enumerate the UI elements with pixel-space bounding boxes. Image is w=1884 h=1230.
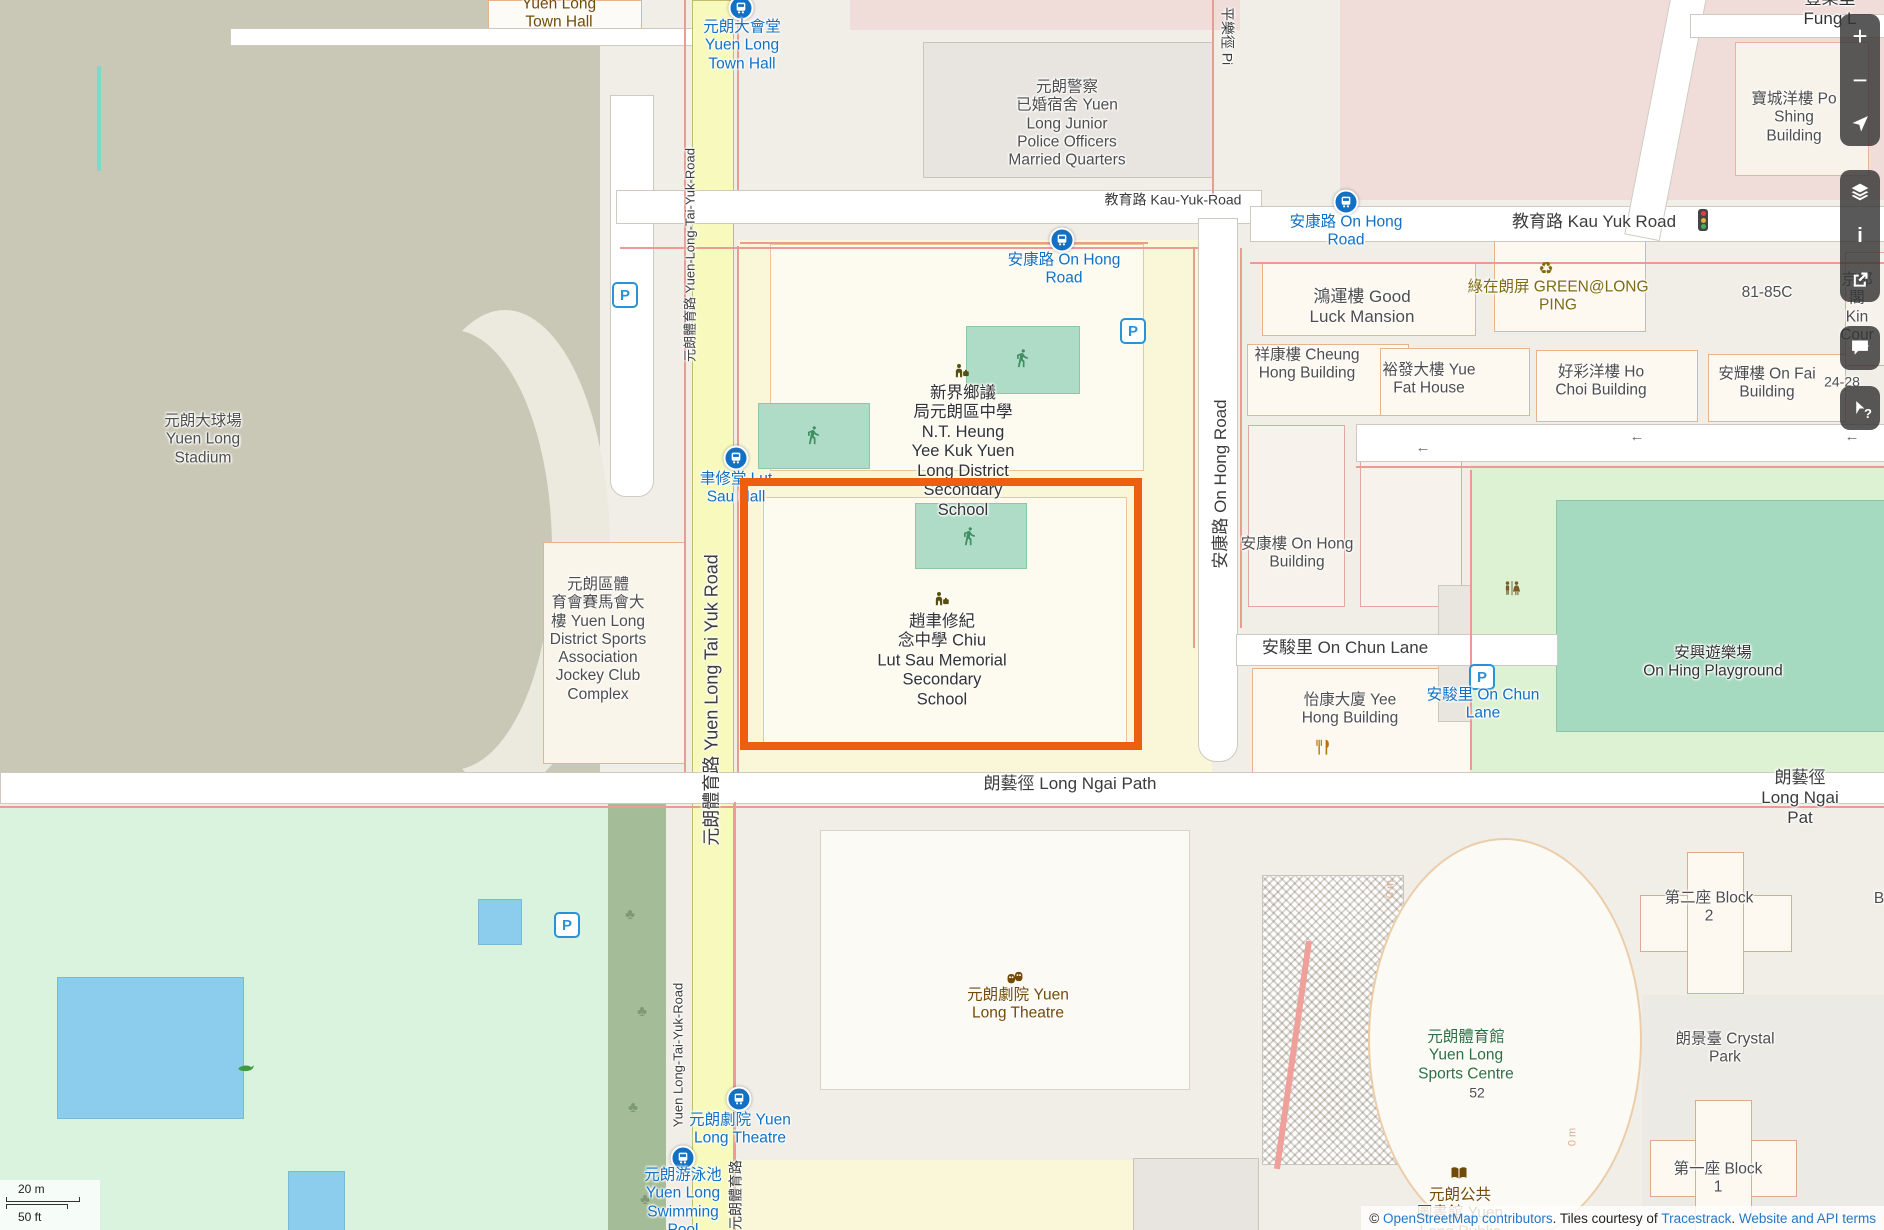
query-question-glyph: ? (1864, 406, 1872, 421)
po-shing-label: 寶城洋樓 Po Shing Building (1749, 91, 1839, 146)
fence-kau-yuk-south (620, 247, 1198, 249)
attribution-bar: © OpenStreetMap contributors. Tiles cour… (1361, 1206, 1884, 1230)
fence-on-hong-w (1193, 248, 1195, 648)
on-hong-building-shape-1 (1248, 425, 1345, 607)
parking-icon[interactable]: P (1120, 318, 1146, 344)
scale-bar-imperial-line (6, 1204, 68, 1209)
fence-on-ning (1356, 466, 1884, 468)
scale-bar: 20 m 50 ft (0, 1180, 100, 1230)
school-yellow-bottom (735, 1160, 1135, 1230)
road-label-tai-yuk-cjk-bottom: 元朗體育路 (728, 1160, 745, 1230)
query-features-button[interactable]: ? (1840, 386, 1880, 430)
layers-control-group: i (1840, 170, 1880, 302)
attribution-sep: . (1731, 1211, 1739, 1226)
note-control-group (1840, 326, 1880, 370)
teal-line (97, 66, 101, 171)
sports-assoc-label: 元朗區體 育會賽馬會大 樓 Yuen Long District Sports … (550, 576, 646, 704)
road-label-kau-yuk-west: 教育路 Kau-Yuk-Road (1105, 192, 1242, 209)
road-label-tai-yuk-bottom: Yuen Long-Tai-Yuk-Road (670, 983, 685, 1128)
block-edge-label: B (1874, 890, 1884, 908)
tracestrack-link[interactable]: Tracestrack (1661, 1211, 1731, 1226)
swimming-pool-main (57, 977, 244, 1119)
sports-centre-label: 元朗體育館 Yuen Long Sports Centre (1418, 1029, 1514, 1084)
library-book-icon (1450, 1165, 1468, 1180)
crystal-park-label: 朗景臺 Crystal Park (1675, 1031, 1774, 1068)
restaurant-icon (1314, 739, 1330, 755)
yee-hong-label: 怡康大廈 Yee Hong Building (1302, 692, 1399, 729)
on-fai-label: 安輝樓 On Fai Building (1718, 366, 1815, 403)
tree-icon: ♣ (637, 1003, 647, 1021)
bus-stop-icon[interactable] (1050, 228, 1075, 253)
police-quarters-label: 元朗警察 已婚宿舍 Yuen Long Junior Police Office… (1008, 78, 1125, 169)
theatre-masks-icon (1007, 970, 1024, 985)
traffic-light-icon (1698, 209, 1708, 231)
block1-label: 第一座 Block 1 (1674, 1161, 1763, 1198)
road-label-tai-yuk-top: 元朗體育路 Yuen-Long-Tai-Yuk-Road (682, 148, 697, 362)
oneway-arrow: ← (1416, 439, 1431, 457)
residential-pink-top (850, 0, 1240, 30)
parking-icon[interactable]: P (612, 282, 638, 308)
selected-feature-highlight (740, 478, 1142, 750)
runner-icon (1012, 348, 1032, 368)
bus-stop-icon[interactable] (729, 0, 754, 21)
stadium-label: 元朗大球場 Yuen Long Stadium (164, 413, 242, 468)
road-label-long-ngai-east: 朗藝徑 Long Ngai Pat (1758, 768, 1842, 828)
scale-metric: 20 m (4, 1182, 96, 1196)
toilets-icon (1503, 579, 1521, 597)
runner-icon (803, 425, 823, 445)
ho-choi-label: 好彩洋樓 Ho Choi Building (1555, 364, 1646, 401)
osm-contributors-link[interactable]: OpenStreetMap contributors (1383, 1211, 1553, 1226)
parking-icon[interactable]: P (554, 912, 580, 938)
theatre-building-shape (820, 830, 1190, 1090)
attribution-mid: . Tiles courtesy of (1553, 1211, 1662, 1226)
sports-centre-addr-label: 52 (1469, 1085, 1485, 1102)
oneway-arrow: ← (1845, 428, 1860, 446)
road-on-ning (1356, 424, 1884, 462)
road-label-on-chun: 安駿里 On Chun Lane (1262, 638, 1428, 658)
road-label-long-ngai-west: 朗藝徑 Long Ngai Path (984, 774, 1157, 794)
oneway-arrow: ← (1630, 428, 1645, 446)
on-chun-stop-label: 安駿里 On Chun Lane (1427, 687, 1540, 724)
on-hong-stop-west-label: 安康路 On Hong Road (1008, 252, 1121, 289)
fence-tai-yuk-west (684, 0, 686, 772)
swimming-pool-lower (288, 1171, 345, 1230)
share-button[interactable] (1840, 258, 1880, 302)
fence-school-top (740, 242, 1148, 244)
on-hong-stop-east-label: 安康路 On Hong Road (1290, 214, 1403, 251)
bus-stop-icon[interactable] (724, 446, 749, 471)
gray-building-bottom (1133, 1158, 1259, 1230)
theatre-label: 元朗劇院 Yuen Long Theatre (967, 987, 1069, 1024)
road-label-ping-lok: 平樂徑 Pi (1219, 7, 1236, 65)
road-long-ngai (0, 772, 1884, 804)
stadium-infield (352, 330, 552, 770)
map-canvas[interactable]: P P P P ♻ ♣ ♣ ♣ ♣ 教育路 Kau-Yuk-Road 教育路 K… (0, 0, 1884, 1230)
town-hall-label: Yuen Long Town Hall (522, 0, 596, 32)
crocodile-icon (238, 1062, 255, 1073)
scale-bar-metric-line (6, 1197, 80, 1202)
fence-ping-lok (1212, 0, 1214, 195)
fence-playground (1470, 470, 1472, 770)
on-hong-building-label: 安康樓 On Hong Building (1241, 536, 1354, 573)
track-distance-label: 0 m (1567, 1128, 1580, 1146)
cheung-hong-label: 祥康樓 Cheung Hong Building (1254, 347, 1359, 384)
road-label-on-hong: 安康路 On Hong Road (1211, 399, 1231, 568)
recycling-icon: ♻ (1538, 259, 1553, 279)
attribution-prefix: © (1369, 1211, 1383, 1226)
road-label-tai-yuk-main: 元朗體育路 Yuen Long Tai Yuk Road (701, 554, 722, 846)
query-control-group: ? (1840, 386, 1880, 430)
zoom-in-button[interactable]: + (1840, 14, 1880, 58)
yue-fat-label: 裕發大樓 Yue Fat House (1382, 362, 1475, 399)
green-long-ping-label: 綠在朗屏 GREEN@LONG PING (1467, 279, 1648, 316)
terms-link[interactable]: Website and API terms (1739, 1211, 1876, 1226)
geolocate-button[interactable] (1840, 102, 1880, 146)
good-luck-mansion-label: 鴻運樓 Good Luck Mansion (1310, 287, 1415, 327)
swimming-pool-stop-label: 元朗游泳池 Yuen Long Swimming Pool (644, 1166, 722, 1230)
theatre-stop-label: 元朗劇院 Yuen Long Theatre (689, 1112, 791, 1149)
fence-tai-yuk-east2 (737, 246, 739, 772)
add-note-button[interactable] (1840, 326, 1880, 370)
fence-long-ngai (0, 806, 1884, 808)
zoom-out-button[interactable]: − (1840, 58, 1880, 102)
bus-stop-icon[interactable] (1334, 190, 1359, 215)
scale-imperial: 50 ft (4, 1210, 96, 1224)
fence-kau-yuk-south-east (1250, 262, 1884, 264)
on-hing-pitch (1556, 500, 1884, 732)
tree-icon: ♣ (628, 1099, 638, 1117)
school-icon (953, 362, 971, 380)
bus-stop-icon[interactable] (727, 1087, 752, 1112)
on-hing-playground-label: 安興遊樂場 On Hing Playground (1643, 645, 1783, 682)
block2-label: 第二座 Block 2 (1665, 890, 1754, 927)
track-distance-label: 0 m (1385, 880, 1398, 898)
addr-81-85c-label: 81-85C (1742, 284, 1793, 302)
map-key-button[interactable]: i (1840, 214, 1880, 258)
layers-button[interactable] (1840, 170, 1880, 214)
swimming-pool-small (478, 899, 522, 945)
road-town-hall (230, 28, 702, 46)
town-hall-stop-label: 元朗大會堂 Yuen Long Town Hall (703, 19, 781, 74)
tree-icon: ♣ (625, 906, 635, 924)
zoom-control-group: + − (1840, 14, 1880, 146)
road-label-kau-yuk-east: 教育路 Kau Yuk Road (1512, 212, 1676, 232)
